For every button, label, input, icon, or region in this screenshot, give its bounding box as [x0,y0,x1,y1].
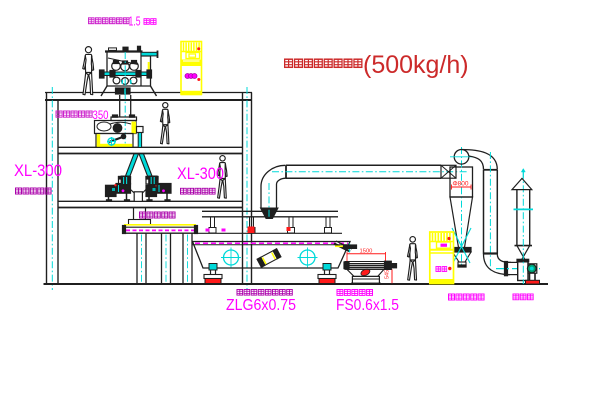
svg-text:Φ800: Φ800 [453,181,469,188]
svg-text:1.5: 1.5 [129,15,141,29]
svg-text:350: 350 [93,108,109,122]
svg-text:XL-300: XL-300 [14,161,62,180]
svg-text:FS0.6x1.5: FS0.6x1.5 [336,297,399,314]
svg-text:545: 545 [385,270,391,279]
svg-text:ZLG6x0.75: ZLG6x0.75 [226,297,296,314]
svg-text:XL-300: XL-300 [177,164,224,183]
svg-text:(500kg/h): (500kg/h) [363,51,469,79]
